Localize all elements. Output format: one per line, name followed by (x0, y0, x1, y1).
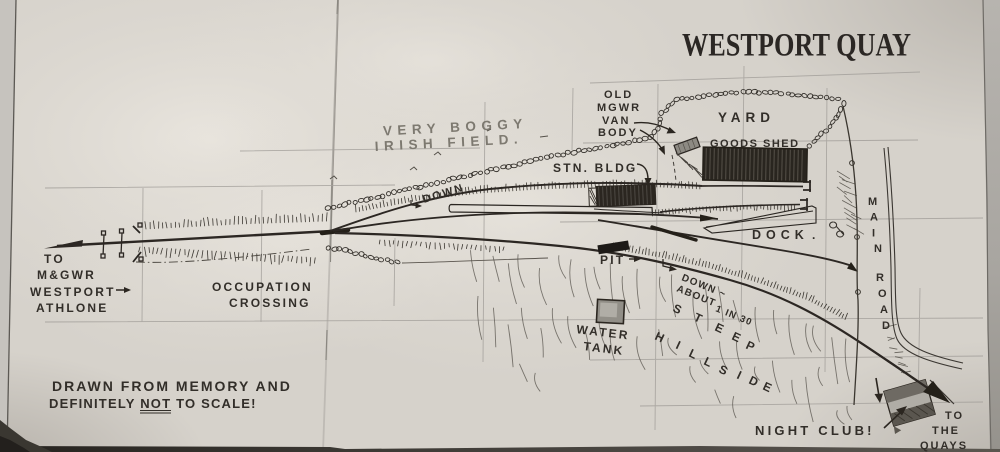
svg-text:QUAYS: QUAYS (920, 440, 968, 452)
svg-text:GOODS SHED: GOODS SHED (710, 138, 800, 150)
svg-text:.: . (812, 228, 818, 242)
svg-text:VAN: VAN (602, 115, 630, 127)
svg-text:N: N (874, 243, 884, 255)
svg-text:WESTPORT QUAY: WESTPORT QUAY (682, 28, 911, 64)
svg-text:TO: TO (44, 252, 65, 266)
svg-text:ATHLONE: ATHLONE (36, 301, 109, 315)
svg-text:BODY: BODY (598, 127, 638, 139)
svg-text:M&GWR: M&GWR (37, 268, 96, 282)
svg-text:I: I (872, 227, 877, 239)
svg-text:A: A (870, 212, 880, 224)
svg-text:D: D (882, 320, 892, 332)
svg-text:TO: TO (945, 410, 964, 422)
svg-text:R: R (876, 272, 886, 284)
svg-text:YARD: YARD (718, 110, 775, 125)
svg-text:O: O (878, 288, 889, 300)
svg-text:DEFINITELY NOT TO SCALE!: DEFINITELY NOT TO SCALE! (49, 396, 257, 411)
svg-text:MGWR: MGWR (597, 102, 641, 114)
svg-text:DRAWN FROM MEMORY AND: DRAWN FROM MEMORY AND (52, 378, 292, 394)
svg-text:WESTPORT: WESTPORT (30, 285, 116, 299)
svg-text:OLD: OLD (604, 89, 633, 101)
svg-text:CROSSING: CROSSING (229, 296, 311, 310)
svg-text:DOCK: DOCK (752, 228, 809, 242)
svg-text:THE: THE (932, 425, 960, 437)
svg-text:A: A (880, 304, 890, 316)
svg-text:PIT: PIT (600, 253, 625, 267)
svg-text:NIGHT CLUB!: NIGHT CLUB! (755, 423, 875, 438)
svg-text:STN. BLDG: STN. BLDG (553, 161, 637, 175)
svg-text:OCCUPATION: OCCUPATION (212, 280, 313, 294)
svg-text:M: M (868, 196, 879, 208)
